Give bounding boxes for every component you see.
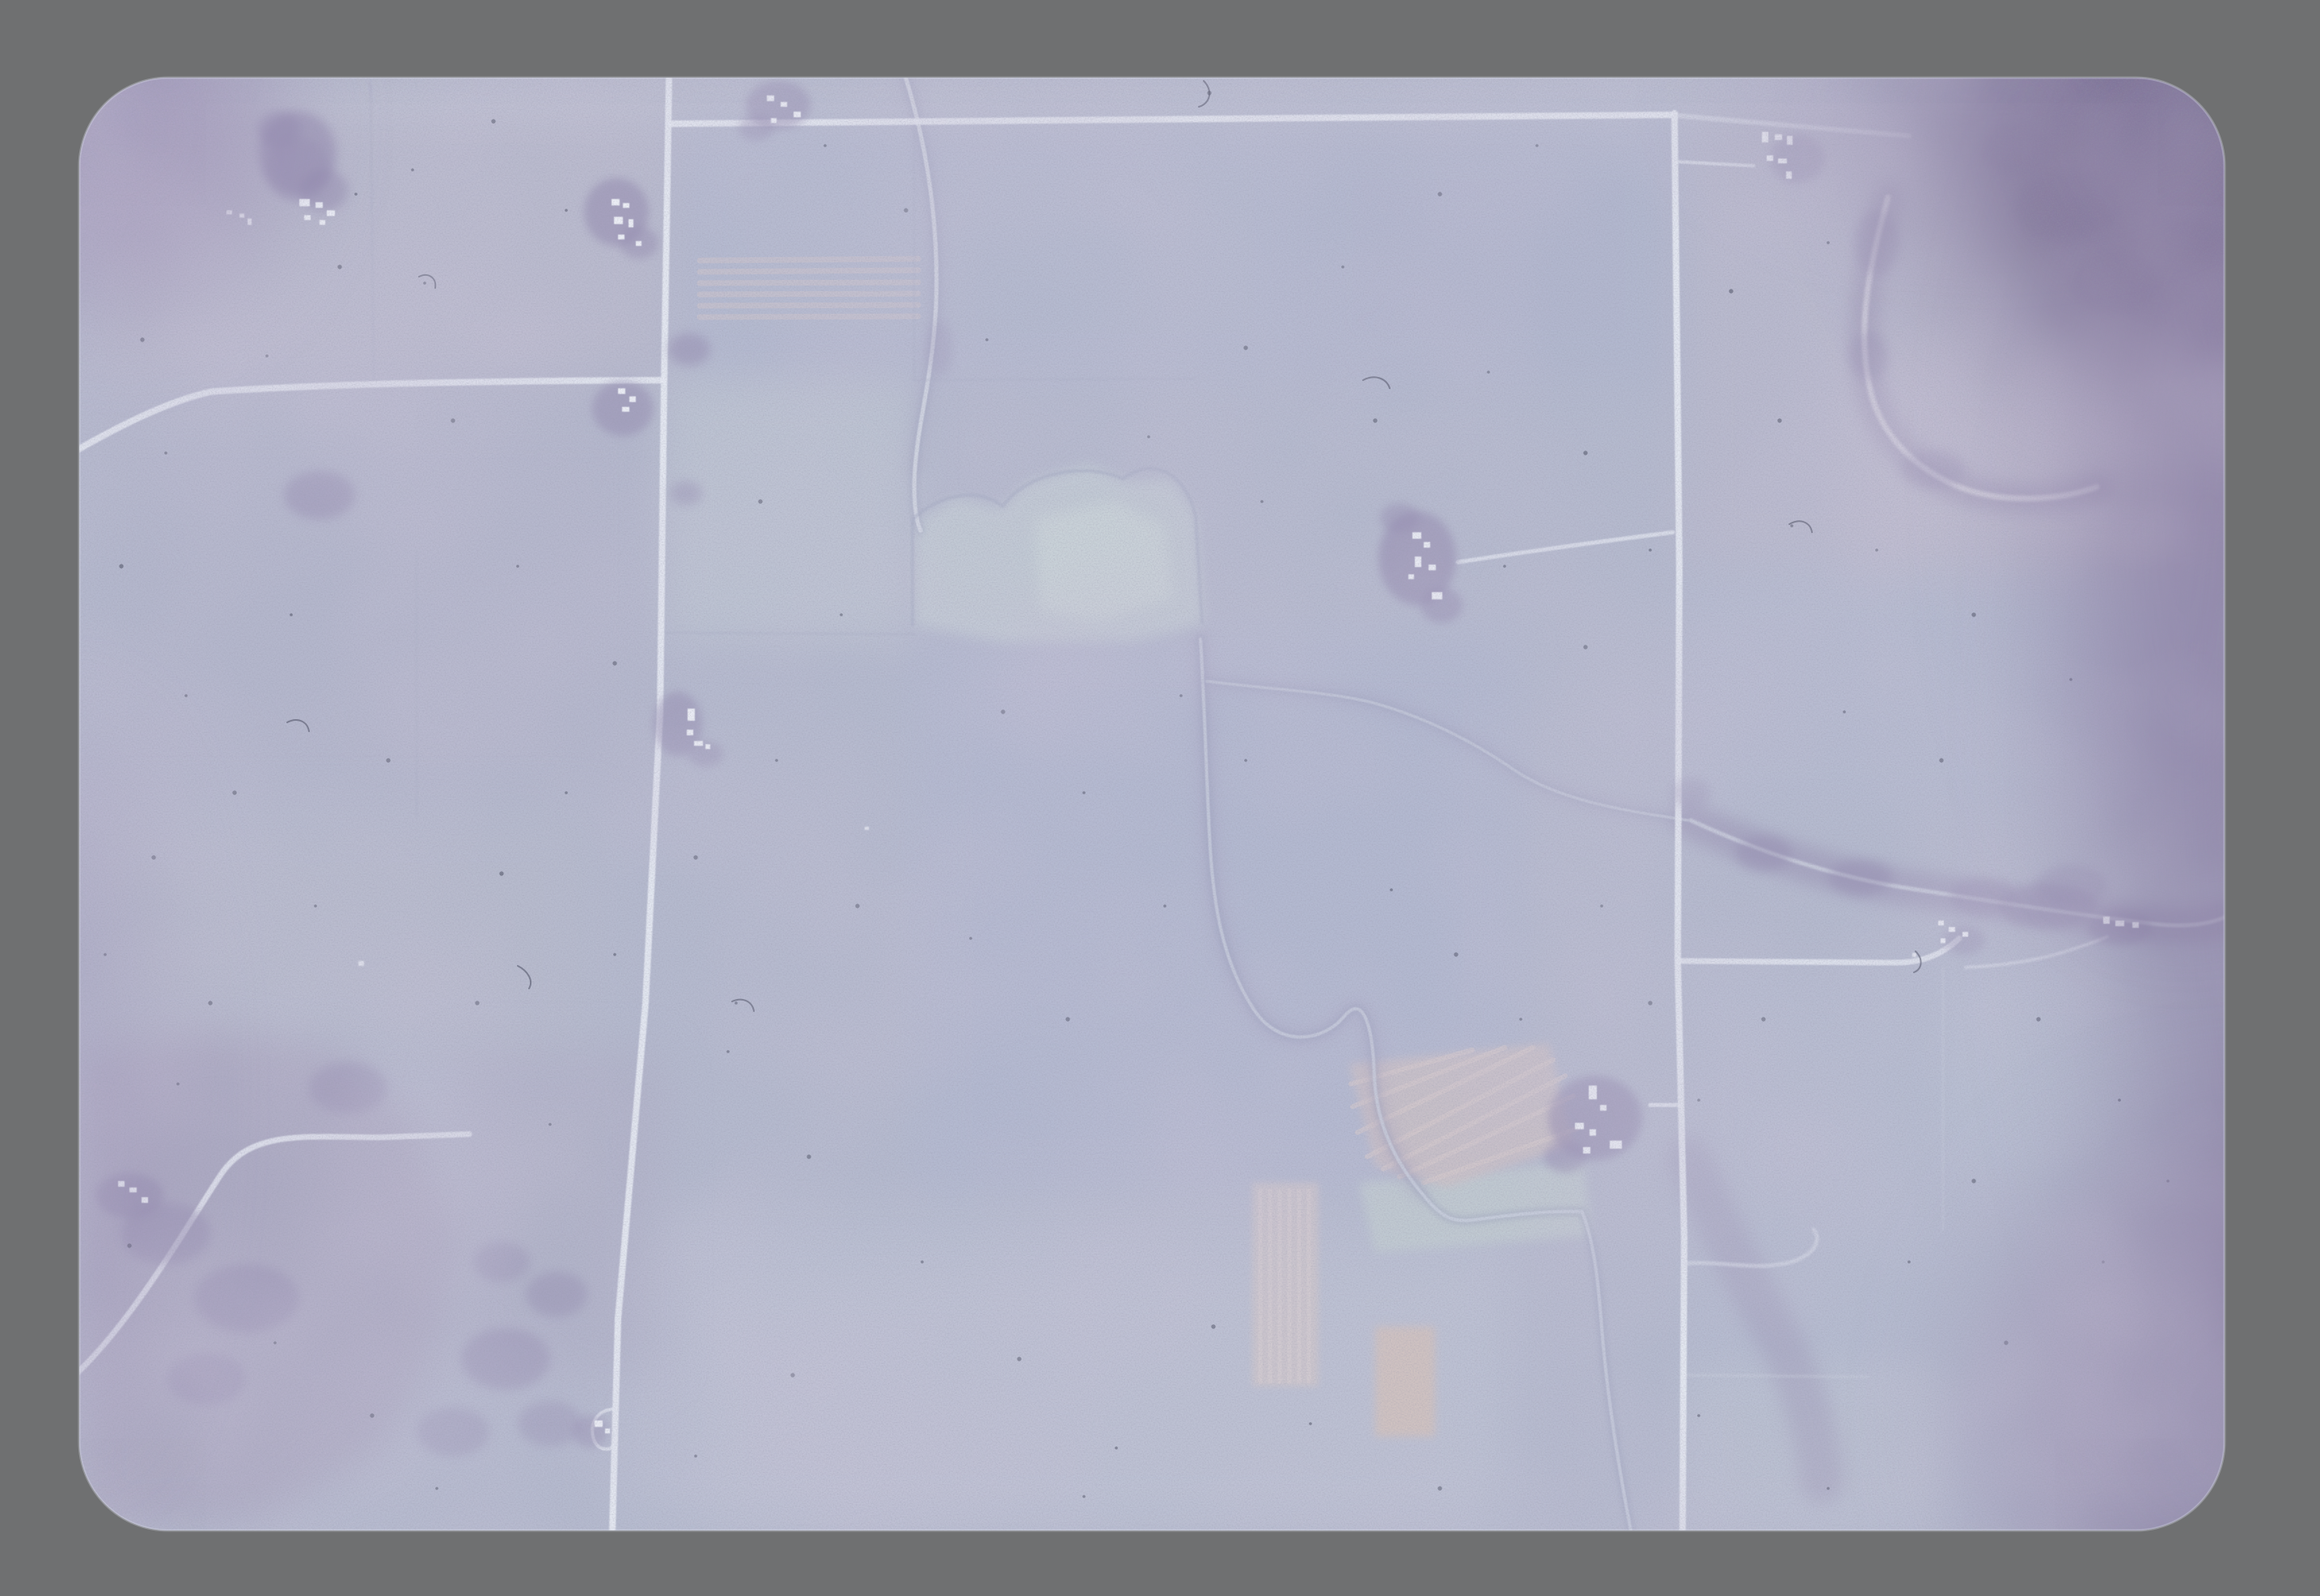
slide-scan bbox=[0, 0, 2320, 1596]
photo-area bbox=[0, 0, 2320, 1596]
aerial-photo-slide bbox=[0, 0, 2320, 1596]
film-grain bbox=[79, 78, 2225, 1530]
